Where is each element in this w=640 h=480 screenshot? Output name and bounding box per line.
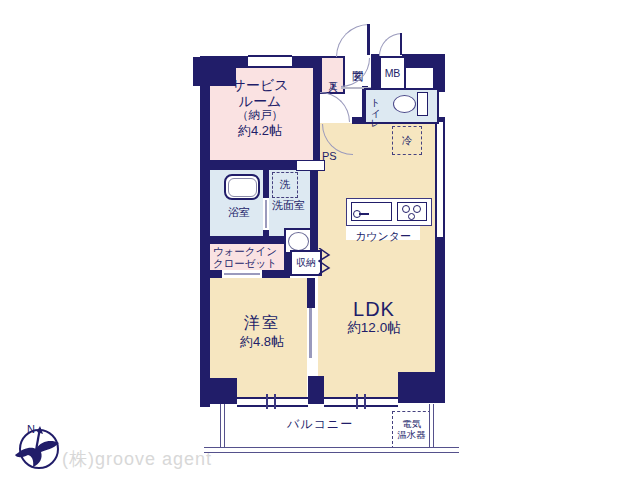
water-heater-space: 電気 温水器 — [392, 411, 431, 449]
company-logo-bird-icon: N — [13, 420, 63, 474]
wic-label: ウォークイン クローゼット — [206, 246, 284, 270]
window-tick — [266, 394, 268, 409]
pipe-space-box — [296, 160, 325, 171]
water-heater-label-2: 温水器 — [397, 430, 426, 441]
bath-label: 浴室 — [228, 206, 250, 218]
toilet-bowl-icon — [393, 95, 416, 113]
balcony-left-rail — [220, 404, 225, 449]
toilet-label: トイレ — [371, 91, 381, 123]
window-right-kitchen — [435, 122, 445, 237]
ldk-label: LDK 約12.0帖 — [322, 298, 426, 336]
floorplan-canvas: 下足入 玄関 MB トイレ PS 洗 収納 カウンター 冷 電気 — [0, 0, 640, 480]
counter-label-strip: カウンター — [346, 226, 420, 240]
window-service-top — [248, 55, 292, 68]
pillar-bottom-left — [205, 378, 237, 404]
washroom-label: 洗面室 — [272, 199, 305, 211]
company-name: (株)groove agent — [62, 449, 212, 469]
kitchen-faucet-line — [359, 213, 369, 215]
window-tick — [364, 394, 366, 409]
pillar-bottom-right — [398, 372, 445, 403]
compass-n-letter: N — [27, 423, 35, 435]
balcony-label: バルコニー — [287, 418, 353, 431]
bathtub-inner-icon — [228, 178, 257, 197]
service-room-label: サービス ルーム （納戸） 約4.2帖 — [208, 78, 312, 139]
pillar-top-right — [433, 54, 445, 92]
wall-western-ldk — [307, 278, 315, 308]
western-room-size: 約4.8帖 — [216, 335, 308, 350]
vanity-sink-icon — [288, 232, 309, 251]
balcony-right-rail — [429, 404, 434, 449]
window-western-balcony — [237, 397, 308, 407]
folding-door-icon — [318, 248, 332, 274]
service-room-line4: 約4.2帖 — [208, 124, 312, 139]
stove-burner-icon — [408, 213, 415, 220]
wall-right-mid — [435, 237, 445, 377]
service-room-line2: ルーム — [208, 94, 312, 110]
wic-line1: ウォークイン — [206, 246, 284, 258]
ldk-size: 約12.0帖 — [322, 320, 426, 335]
wic-line2: クローゼット — [206, 258, 284, 270]
western-room-label: 洋室 約4.8帖 — [216, 314, 308, 349]
western-room-name: 洋室 — [216, 314, 308, 332]
meter-box: MB — [379, 56, 406, 91]
stove-burner-icon — [402, 205, 410, 213]
wall-bath-wic — [200, 236, 290, 244]
laundry-label: 洗 — [280, 179, 291, 191]
counter-label: カウンター — [355, 230, 411, 242]
toilet-tank-icon — [417, 92, 428, 116]
mb-door-leaf — [400, 33, 402, 55]
entrance-door-leaf — [367, 24, 370, 55]
refrigerator-space: 冷 — [392, 126, 422, 155]
window-ldk-balcony — [324, 397, 398, 407]
wall-bottom-stub — [308, 376, 324, 404]
wall-genkan-mb — [371, 54, 379, 90]
storage-label: 収納 — [296, 257, 316, 268]
entrance-door-arc — [336, 24, 369, 57]
bath-door-line — [265, 200, 267, 228]
window-tick — [356, 394, 358, 409]
wic-door-line — [224, 273, 260, 275]
service-room-line1: サービス — [208, 78, 312, 94]
stove-burner-icon — [413, 205, 421, 213]
laundry-space: 洗 — [272, 172, 298, 198]
mb-door-arc — [379, 33, 402, 56]
balcony-bottom-rail — [204, 447, 459, 453]
slider-western-ldk — [309, 308, 312, 358]
pipe-space-label: PS — [322, 150, 337, 162]
service-room-line3: （納戸） — [208, 109, 312, 122]
meter-box-label: MB — [385, 68, 401, 80]
wall-service-right — [313, 56, 320, 160]
window-tick — [274, 394, 276, 409]
ldk-name: LDK — [322, 298, 426, 320]
refrigerator-label: 冷 — [402, 135, 413, 147]
